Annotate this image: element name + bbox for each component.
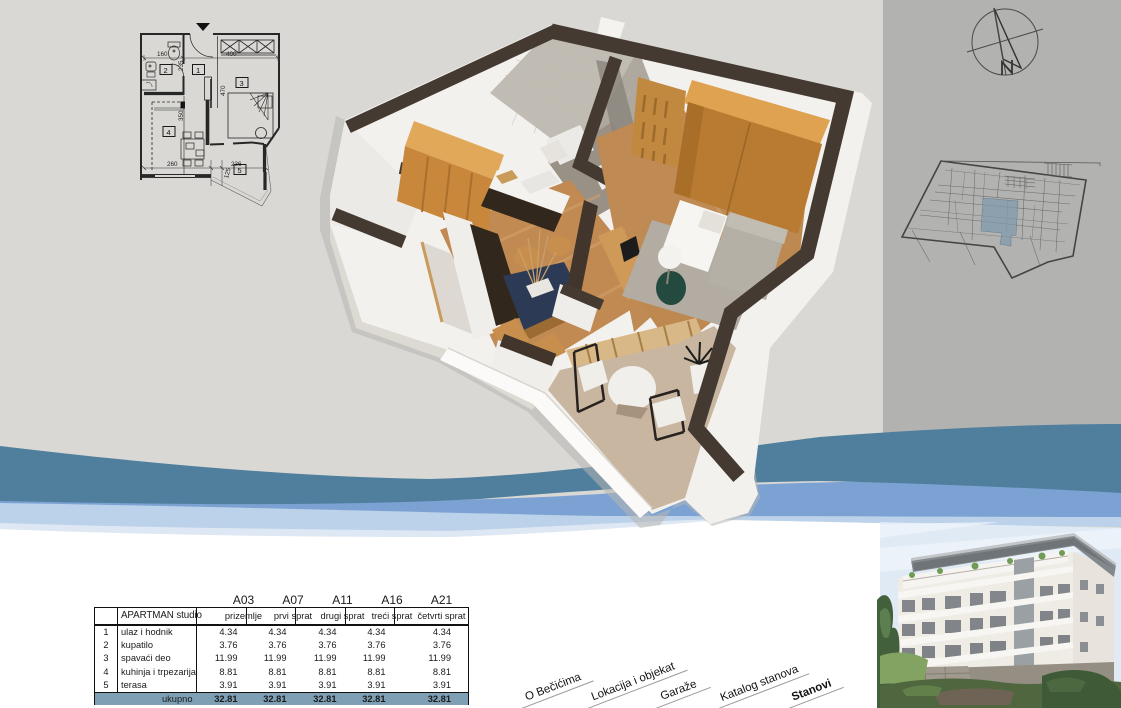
svg-text:400: 400 <box>226 51 237 58</box>
svg-text:1: 1 <box>196 66 200 75</box>
svg-text:470: 470 <box>220 85 227 96</box>
svg-text:4: 4 <box>167 128 171 137</box>
svg-text:235: 235 <box>178 60 185 71</box>
svg-text:5: 5 <box>238 166 242 175</box>
svg-text:260: 260 <box>167 161 178 168</box>
svg-text:2: 2 <box>164 66 168 75</box>
svg-text:350: 350 <box>178 110 185 121</box>
svg-text:3: 3 <box>240 79 244 88</box>
svg-text:160: 160 <box>157 51 168 58</box>
